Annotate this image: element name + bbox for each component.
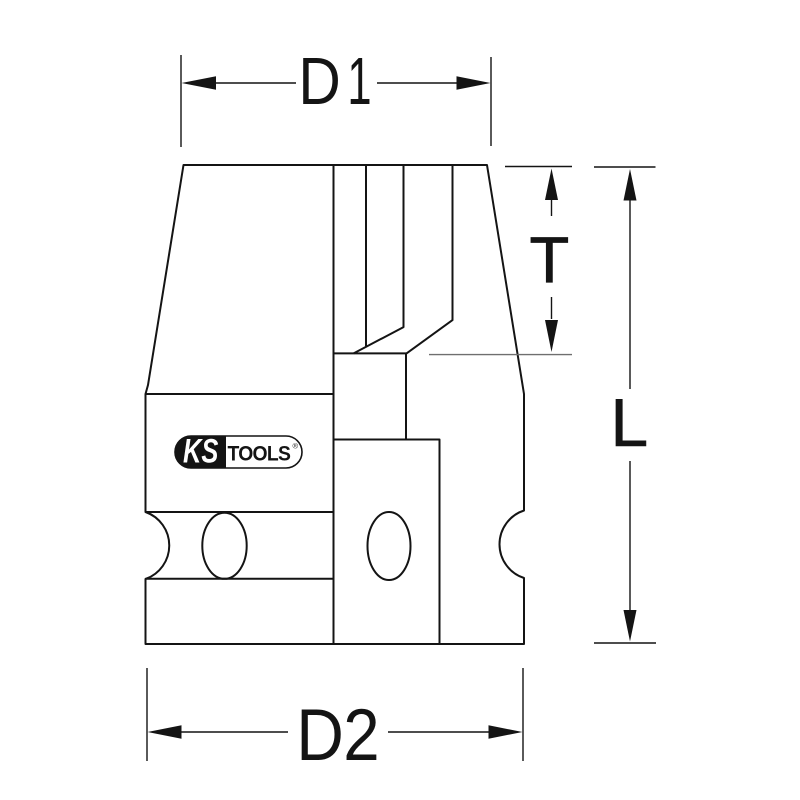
svg-text:2: 2 xyxy=(343,693,379,775)
svg-text:KS: KS xyxy=(183,433,218,470)
svg-text:®: ® xyxy=(293,442,299,451)
svg-text:1: 1 xyxy=(347,43,371,118)
svg-text:TOOLS: TOOLS xyxy=(228,441,291,465)
svg-text:L: L xyxy=(610,385,648,461)
svg-text:T: T xyxy=(529,224,569,297)
svg-text:D: D xyxy=(298,44,340,118)
svg-text:D: D xyxy=(296,694,344,776)
